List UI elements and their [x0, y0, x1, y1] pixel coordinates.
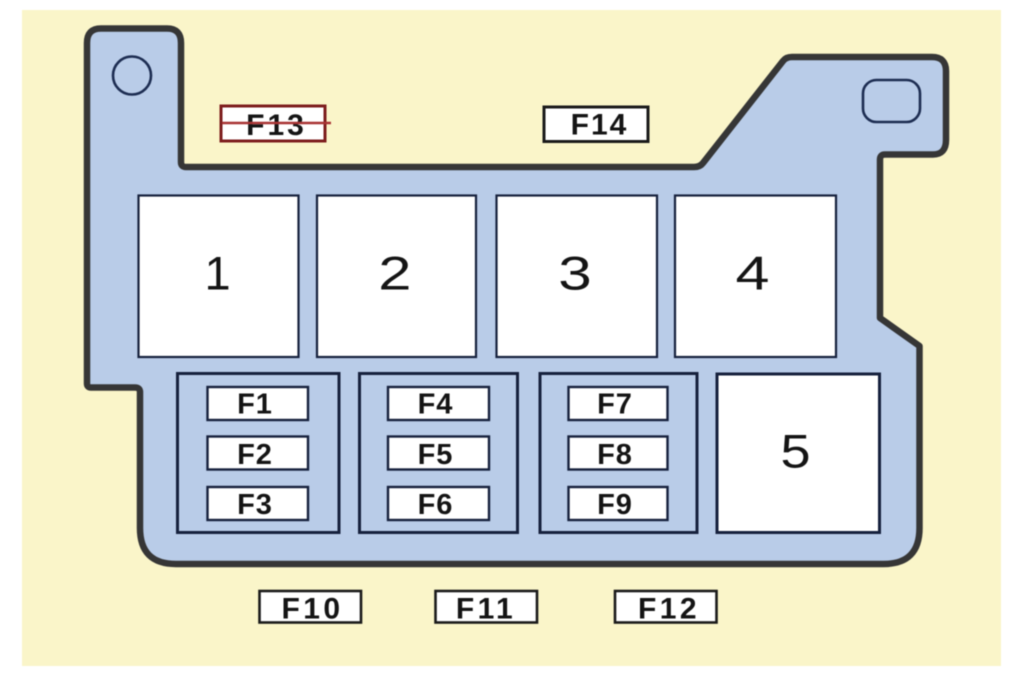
svg-text:F14: F14 — [571, 109, 629, 142]
svg-text:F3: F3 — [237, 489, 273, 521]
svg-text:5: 5 — [780, 425, 810, 478]
svg-text:F8: F8 — [597, 439, 633, 471]
svg-text:F5: F5 — [418, 439, 454, 471]
svg-text:F4: F4 — [418, 389, 454, 421]
svg-text:F10: F10 — [282, 593, 344, 626]
svg-text:4: 4 — [736, 247, 770, 300]
svg-text:2: 2 — [378, 248, 411, 300]
svg-text:F2: F2 — [237, 439, 273, 471]
svg-text:F1: F1 — [237, 389, 273, 421]
svg-text:F11: F11 — [456, 593, 516, 626]
svg-text:F7: F7 — [597, 389, 633, 421]
svg-text:F6: F6 — [418, 489, 454, 521]
svg-text:1: 1 — [204, 247, 230, 300]
svg-text:F13: F13 — [246, 109, 307, 142]
svg-text:F12: F12 — [638, 593, 700, 626]
svg-text:F9: F9 — [597, 489, 633, 521]
svg-text:3: 3 — [558, 248, 591, 300]
